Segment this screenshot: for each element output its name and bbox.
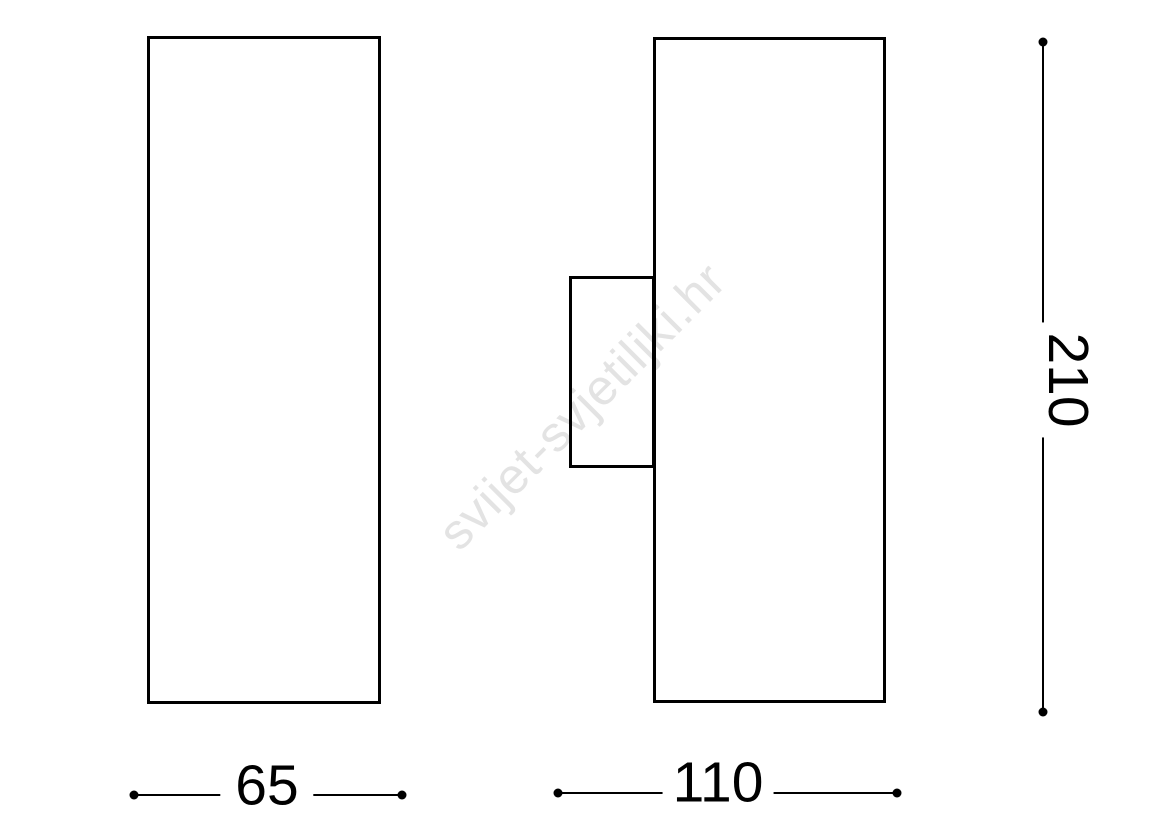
dimension-drawing: svijet-svjetiljki.hr 65 110 210: [0, 0, 1168, 815]
height-dimension-label: 210: [1034, 322, 1102, 437]
dimension-endpoint-dot: [1039, 708, 1048, 717]
side-view-outline: [653, 37, 886, 703]
dimension-endpoint-dot: [1039, 38, 1048, 47]
dimension-endpoint-dot: [130, 791, 139, 800]
front-view-outline: [147, 36, 381, 704]
dimension-endpoint-dot: [398, 791, 407, 800]
side-width-dimension-label: 110: [663, 755, 774, 812]
dimension-endpoint-dot: [554, 789, 563, 798]
dimension-endpoint-dot: [893, 789, 902, 798]
wall-mount-outline: [569, 276, 655, 468]
front-width-dimension-label: 65: [220, 758, 313, 815]
